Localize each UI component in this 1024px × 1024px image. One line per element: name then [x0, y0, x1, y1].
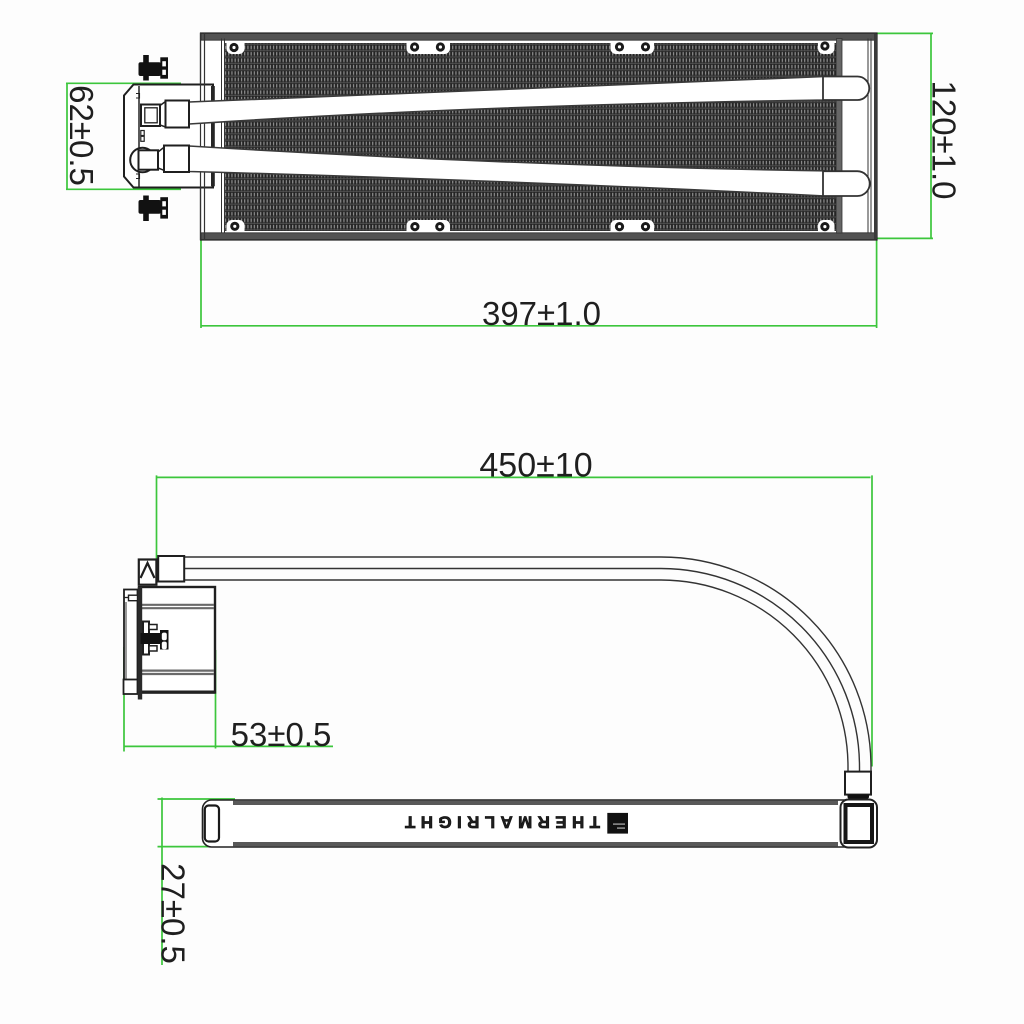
svg-text:27±0.5: 27±0.5 [155, 863, 192, 964]
svg-text:450±10: 450±10 [479, 447, 592, 485]
svg-text:62±0.5: 62±0.5 [63, 85, 100, 186]
svg-text:53±0.5: 53±0.5 [231, 716, 332, 753]
svg-text:397±1.0: 397±1.0 [482, 295, 601, 332]
svg-text:120±1.0: 120±1.0 [926, 80, 963, 199]
